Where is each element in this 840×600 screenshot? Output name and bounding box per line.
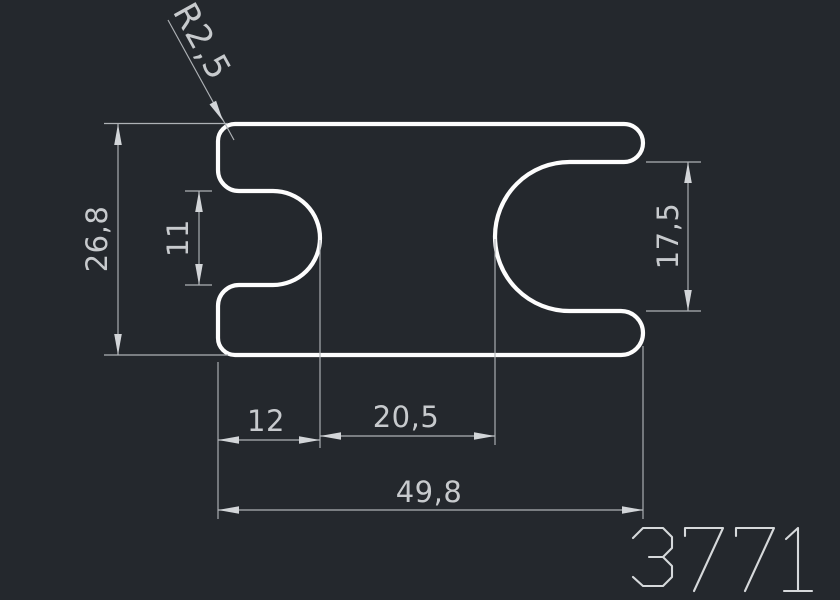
arrowhead-right bbox=[622, 506, 643, 514]
dimension-center-span: 20,5 bbox=[320, 400, 495, 440]
dimension-left-slot-depth: 12 bbox=[218, 404, 320, 444]
cad-drawing-viewport: R2,5 26,8 11 17,5 bbox=[0, 0, 840, 600]
arrowhead-right bbox=[474, 432, 495, 440]
left-slot-height-label: 11 bbox=[161, 219, 195, 257]
arrowhead-left bbox=[320, 432, 341, 440]
dimension-overall-width: 49,8 bbox=[218, 475, 643, 514]
part-number-digit-1 bbox=[784, 528, 812, 591]
center-span-label: 20,5 bbox=[373, 400, 440, 434]
arrowhead-up bbox=[195, 191, 203, 212]
part-number: 3771 bbox=[630, 518, 813, 600]
cad-canvas: R2,5 26,8 11 17,5 bbox=[0, 0, 840, 600]
part-number-digit-7b bbox=[736, 528, 774, 591]
overall-width-label: 49,8 bbox=[396, 475, 463, 509]
arrowhead-down bbox=[195, 264, 203, 285]
arrowhead-up bbox=[684, 162, 692, 183]
radius-label: R2,5 bbox=[164, 0, 239, 87]
profile-outline bbox=[218, 124, 643, 355]
part-number-digit-7 bbox=[685, 528, 723, 591]
arrowhead-down bbox=[114, 334, 122, 355]
leader-arrowhead bbox=[210, 101, 224, 121]
dimension-right-slot-height: 17,5 bbox=[646, 162, 701, 311]
arrowhead-left bbox=[218, 506, 239, 514]
part-number-digit-3 bbox=[633, 528, 672, 586]
arrowhead-down bbox=[684, 290, 692, 311]
dimension-overall-height: 26,8 bbox=[80, 124, 228, 356]
right-slot-height-label: 17,5 bbox=[651, 203, 685, 270]
arrowhead-left bbox=[218, 436, 239, 444]
arrowhead-up bbox=[114, 124, 122, 145]
arrowhead-right bbox=[299, 436, 320, 444]
dimension-corner-radius: R2,5 bbox=[164, 0, 239, 140]
left-slot-depth-label: 12 bbox=[247, 404, 285, 438]
overall-height-label: 26,8 bbox=[80, 206, 114, 273]
dimension-left-slot-height: 11 bbox=[161, 191, 212, 285]
